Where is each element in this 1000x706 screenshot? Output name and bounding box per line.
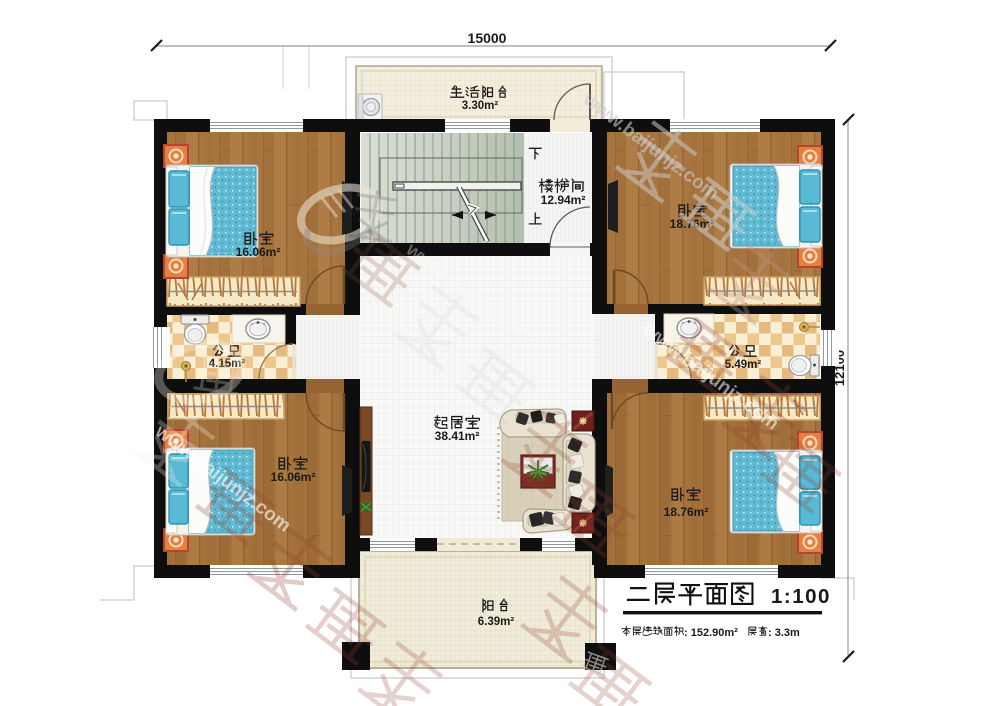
svg-text:6.39m²: 6.39m² (478, 616, 515, 628)
svg-text:: 152.90m²: : 152.90m² (684, 627, 738, 639)
svg-text:18.76m²: 18.76m² (664, 505, 709, 519)
svg-text:: 3.3m: : 3.3m (768, 627, 800, 639)
svg-text:3.30m²: 3.30m² (462, 100, 499, 112)
svg-text:15000: 15000 (468, 30, 507, 46)
svg-text:38.41m²: 38.41m² (435, 429, 480, 443)
svg-text:16.06m²: 16.06m² (271, 470, 316, 484)
svg-text:12.94m²: 12.94m² (541, 193, 586, 207)
svg-text:16.06m²: 16.06m² (236, 245, 281, 259)
svg-text:1:100: 1:100 (771, 585, 831, 608)
